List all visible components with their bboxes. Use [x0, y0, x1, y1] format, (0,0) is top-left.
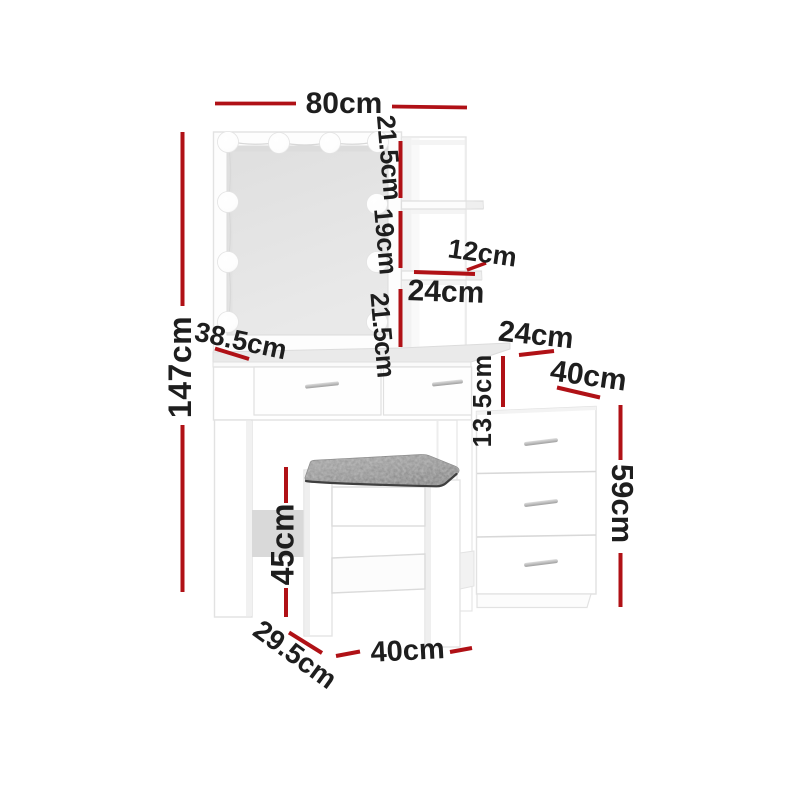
svg-text:45cm: 45cm: [265, 504, 301, 586]
svg-text:59cm: 59cm: [605, 464, 640, 543]
svg-text:24cm: 24cm: [407, 274, 485, 310]
svg-text:40cm: 40cm: [548, 354, 629, 397]
svg-text:40cm: 40cm: [370, 633, 446, 669]
svg-text:147cm: 147cm: [162, 316, 198, 418]
svg-text:19cm: 19cm: [368, 207, 404, 276]
svg-text:80cm: 80cm: [306, 87, 383, 120]
svg-text:13.5cm: 13.5cm: [469, 354, 497, 448]
